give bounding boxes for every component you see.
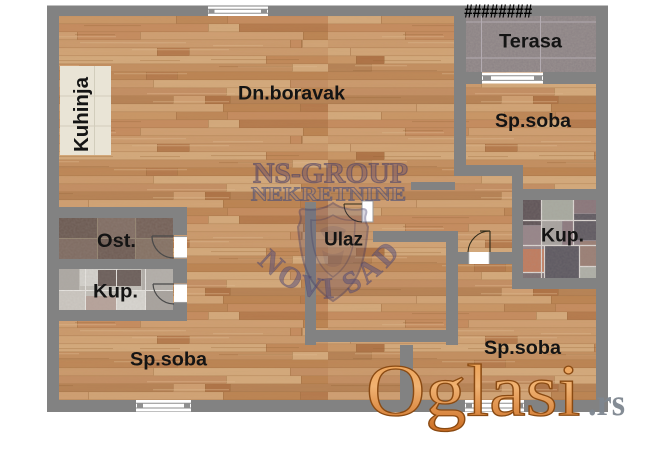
- svg-text:Ost.: Ost.: [97, 231, 136, 252]
- svg-text:Dn.boravak: Dn.boravak: [238, 83, 345, 105]
- svg-text:Kup.: Kup.: [93, 282, 138, 303]
- svg-text:Kup.: Kup.: [541, 226, 584, 247]
- svg-text:Oglasi: Oglasi: [366, 349, 580, 431]
- svg-text:NEKRETNINE: NEKRETNINE: [251, 184, 406, 206]
- svg-text:.rs: .rs: [588, 382, 625, 424]
- svg-text:Terasa: Terasa: [499, 32, 562, 53]
- svg-text:########: ########: [464, 1, 533, 22]
- svg-text:Ulaz: Ulaz: [324, 230, 363, 251]
- svg-text:Sp.soba: Sp.soba: [495, 111, 571, 132]
- svg-text:Sp.soba: Sp.soba: [130, 350, 207, 371]
- svg-text:Kuhinja: Kuhinja: [71, 76, 93, 152]
